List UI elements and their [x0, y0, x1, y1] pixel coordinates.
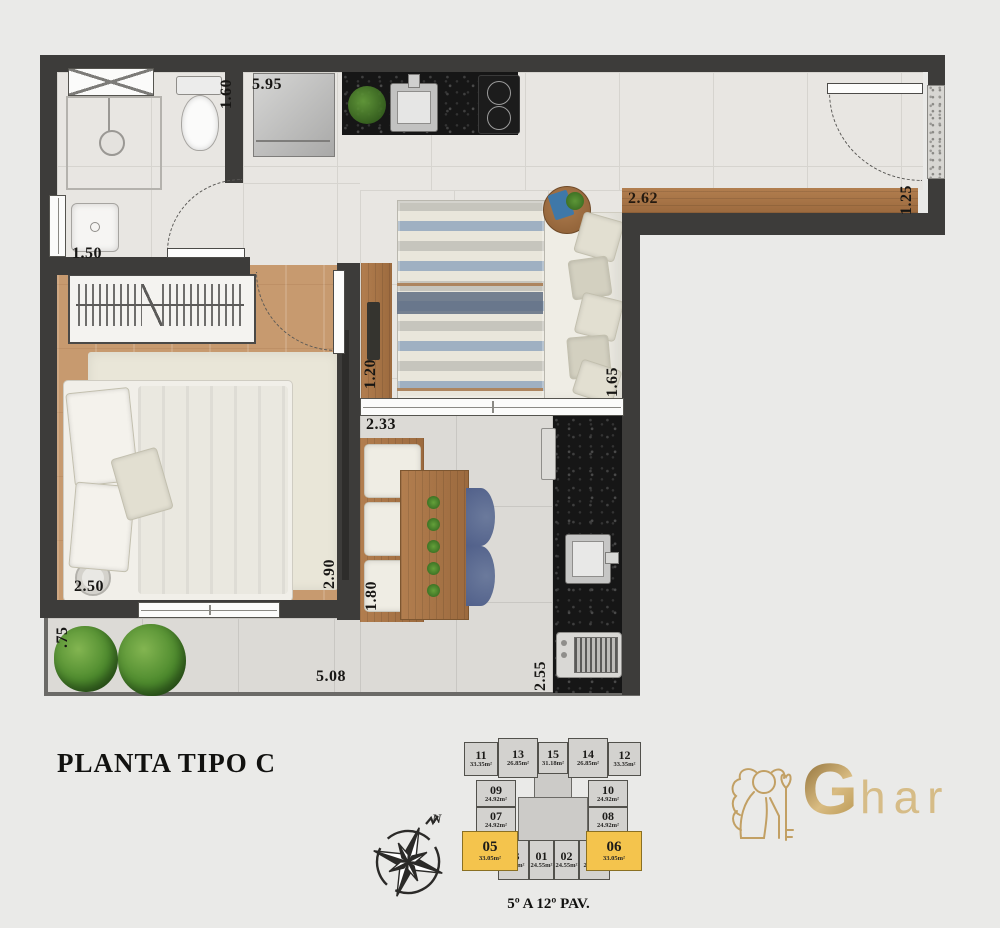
entry-landing [927, 85, 945, 179]
dim-bath-right: 1.60 [218, 72, 236, 116]
table-plate [427, 540, 440, 553]
dining-chair-blue [466, 488, 495, 546]
shower-cord [108, 98, 110, 132]
keyplan-caption: 5º A 12º PAV. [446, 896, 651, 913]
rug-accent-line-1 [397, 283, 543, 286]
keyplan-unit-09: 0924.92m² [476, 780, 516, 807]
lion-key-icon [726, 760, 802, 848]
keyplan-unit-05-highlighted: 0533.05m² [462, 831, 518, 871]
dim-bed-width: 2.50 [74, 578, 104, 596]
kitchen-faucet [408, 74, 420, 88]
wall-corridor-bottom [622, 213, 945, 235]
keyplan-unit-02: 0224.55m² [554, 840, 579, 880]
dim-grill-counter: 2.55 [532, 652, 550, 700]
dim-entry-door: 1.25 [898, 178, 916, 222]
compass-north-label: N [431, 811, 442, 826]
side-table-plant [566, 192, 584, 210]
bedroom-door-leaf [333, 270, 345, 354]
dim-kitchen-top: 5.95 [252, 76, 282, 94]
page-title: PLANTA TIPO C [57, 748, 276, 779]
wall-right-upper [928, 55, 945, 87]
grill-knob [561, 652, 567, 658]
keyplan-unit-01: 0124.55m² [529, 840, 554, 880]
keyplan-unit-14: 1426.85m² [568, 738, 608, 778]
table-plate [427, 584, 440, 597]
table-plate [427, 496, 440, 509]
toilet-tank [176, 76, 222, 95]
dining-chair-blue [466, 546, 495, 606]
keyplan-unit-13: 1326.85m² [498, 738, 538, 778]
dim-bath-sink: 1.50 [72, 245, 102, 263]
gourmet-faucet [605, 552, 619, 564]
dim-tv-console: 1.20 [362, 352, 380, 396]
bedroom-window [138, 602, 280, 618]
keyplan-unit-10: 1024.92m² [588, 780, 628, 807]
table-plate [427, 518, 440, 531]
keyplan-core [518, 797, 588, 841]
hall-floor [243, 183, 360, 265]
grill-knob [561, 640, 567, 646]
gourmet-sink-basin [572, 541, 604, 577]
dim-living-window: 2.33 [366, 416, 396, 434]
kitchen-sink-basin [397, 91, 431, 124]
keyplan-unit-08: 0824.92m² [588, 807, 628, 833]
sink-drain [90, 222, 100, 232]
living-sliding-window [360, 398, 624, 416]
garden-border-left [44, 616, 48, 696]
dim-garden-depth: .75 [54, 618, 72, 656]
keyplan-unit-15: 1531.18m² [538, 742, 568, 774]
garden-border-bottom [44, 692, 640, 696]
compass-rose: N [364, 810, 456, 906]
counter-plant [348, 86, 386, 124]
entry-door-leaf [827, 83, 923, 94]
keyplan: 1133.35m² 1326.85m² 1531.18m² 1426.85m² … [456, 735, 641, 883]
counter-appliance [541, 428, 556, 480]
brand-logo: G har [726, 760, 951, 848]
logo-letter-g: G [802, 760, 858, 821]
bathroom-door-leaf [167, 248, 245, 258]
floor-plan-page: 5.95 1.60 1.50 2.62 1.25 1.20 2.33 1.65 … [0, 0, 1000, 928]
dim-terrace-width: 5.08 [316, 668, 346, 686]
dim-hall-bench: 2.62 [628, 190, 658, 208]
wall-left [40, 55, 57, 618]
shaft-box [68, 68, 154, 96]
cooktop-burner-1 [487, 81, 511, 105]
garden-bush [118, 624, 186, 696]
rug-center-band [397, 292, 543, 314]
wall-top [40, 55, 945, 72]
keyplan-unit-11: 1133.35m² [464, 742, 498, 776]
wall-right-main [622, 213, 640, 695]
sliding-door-panel [342, 330, 349, 580]
bathroom-window [49, 195, 66, 257]
keyplan-unit-06-highlighted: 0633.05m² [586, 831, 642, 871]
keyplan-unit-07: 0724.92m² [476, 807, 516, 833]
cooktop-burner-2 [487, 106, 511, 130]
wardrobe-divider-slash [142, 284, 162, 326]
toilet-bowl [181, 95, 219, 151]
refrigerator-handle [256, 140, 330, 142]
dim-bedroom-wall: 2.90 [321, 550, 339, 598]
entry-bench [622, 188, 918, 213]
table-plate [427, 562, 440, 575]
shower-head [99, 130, 125, 156]
grill-grate [574, 637, 618, 673]
dim-sofa-depth: 1.65 [604, 360, 622, 404]
keyplan-unit-12: 1233.35m² [608, 742, 641, 776]
dim-dining-bench: 1.80 [363, 574, 381, 618]
logo-text-har: har [860, 774, 950, 820]
rug-accent-line-2 [397, 388, 543, 391]
